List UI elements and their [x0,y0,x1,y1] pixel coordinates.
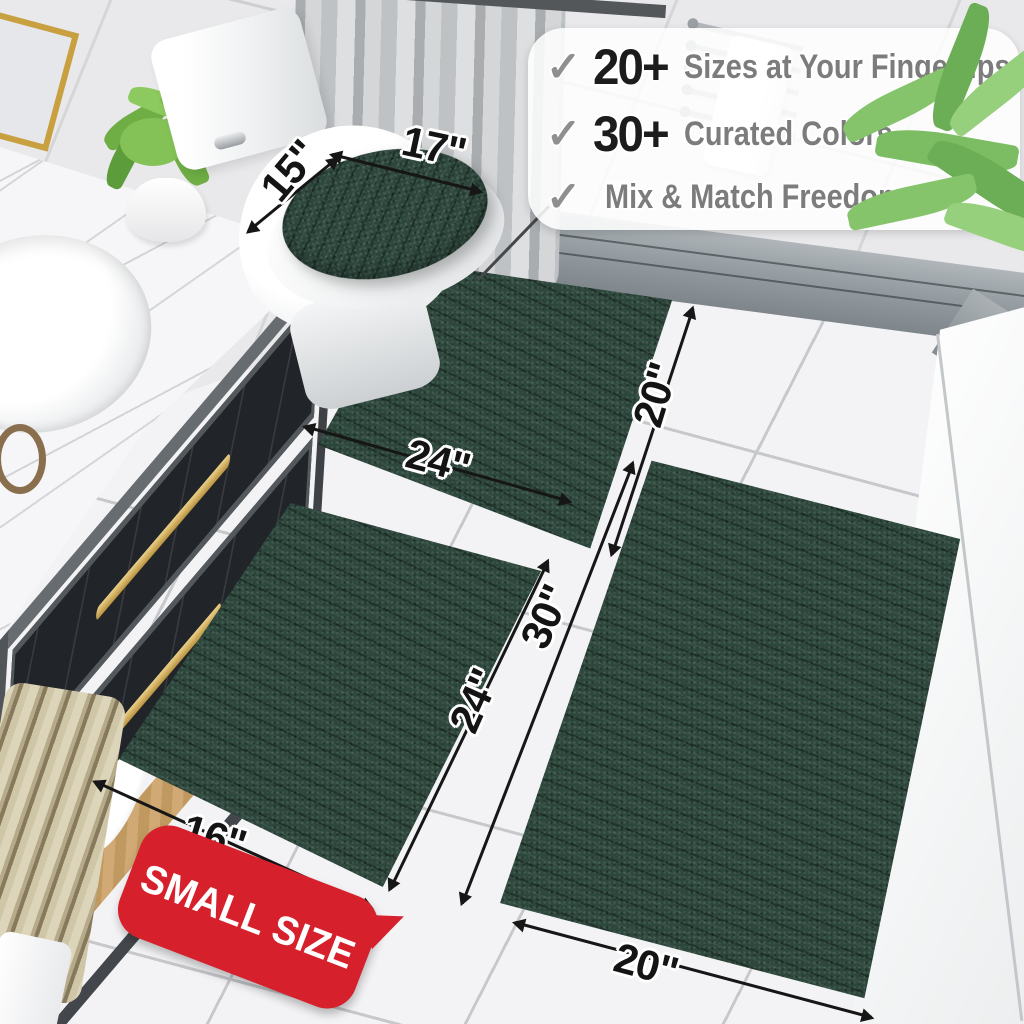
product-image: 17" 15" 24" 20" 24" 30" 16" 20" ✓ 20+ Si… [0,0,1024,1024]
check-icon: ✓ [546,113,581,155]
plant-vase [126,178,206,242]
check-icon: ✓ [546,176,581,218]
feature-number: 30+ [593,109,668,159]
check-icon: ✓ [546,46,581,88]
feature-number: 20+ [593,42,668,92]
